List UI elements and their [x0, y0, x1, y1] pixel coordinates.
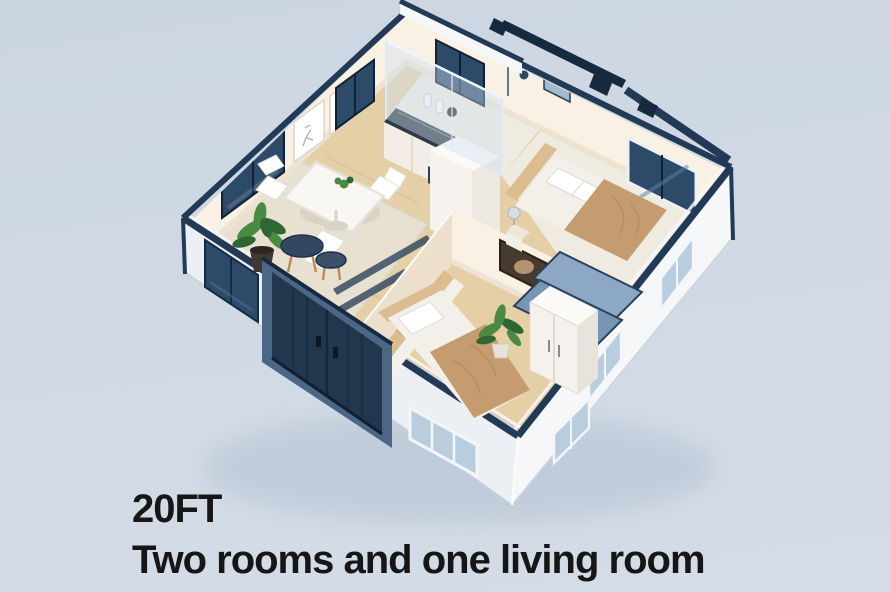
door-handle [333, 347, 338, 358]
caption-description: Two rooms and one living room [132, 538, 705, 582]
screenshot-root: 20FT Two rooms and one living room [0, 0, 890, 592]
caption-size: 20FT [132, 487, 221, 531]
table-lamp [508, 207, 520, 219]
door-handle [316, 336, 321, 347]
